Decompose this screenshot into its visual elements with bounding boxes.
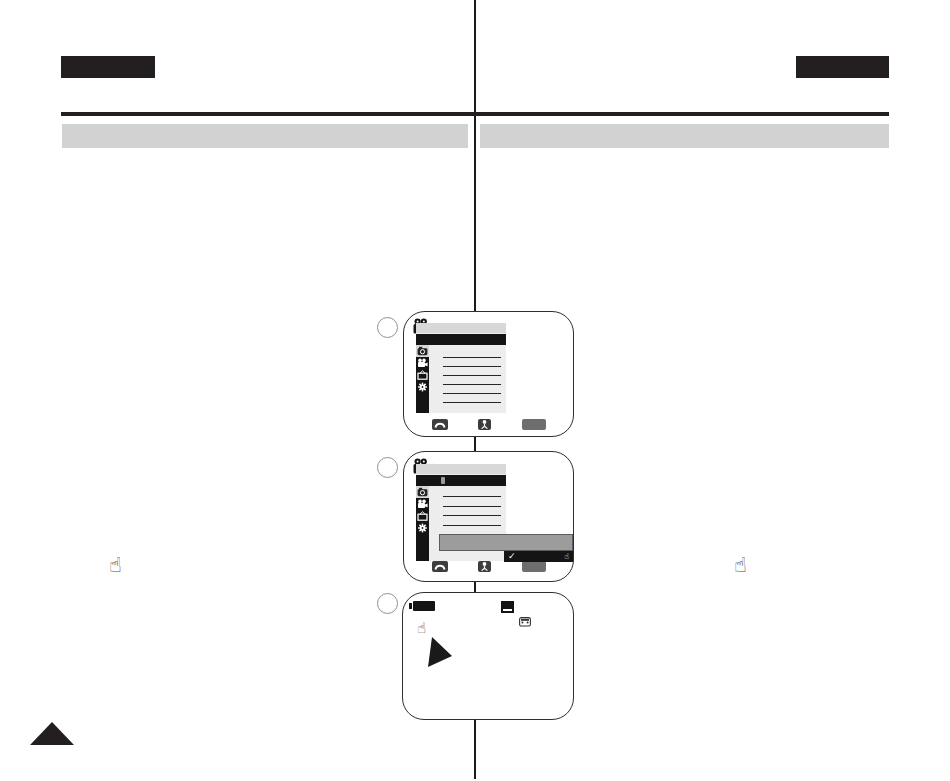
menu-item-line (443, 515, 501, 516)
press-hand-icon: ☝ (564, 553, 569, 561)
joystick-icon (478, 419, 491, 430)
menu-items-area (429, 345, 506, 413)
checkmark-icon: ✓ (508, 552, 516, 561)
step-circle-1 (377, 317, 398, 338)
menu-item-line (443, 402, 501, 403)
selection-highlight-bar (439, 534, 573, 551)
language-tab-right (796, 56, 889, 78)
selected-menu-row (416, 333, 506, 345)
menu-button (522, 419, 546, 430)
menu-item-line (443, 506, 501, 507)
gear-tab-icon (416, 381, 429, 393)
camera-menu (416, 323, 506, 414)
pointer-triangle (403, 593, 575, 721)
menu-button (522, 561, 546, 572)
tv-tab-icon (416, 510, 429, 522)
camera-tab-icon (416, 345, 429, 357)
language-tab-left (61, 56, 155, 78)
menu-header-bar (416, 464, 506, 474)
camera-tab-icon (416, 486, 429, 498)
lcd-screen-step3: ☝ (402, 592, 574, 720)
joystick-icon (478, 561, 491, 572)
menu-item-line (443, 384, 501, 385)
lcd-screen-step1 (403, 311, 574, 437)
manual-page: ☝ ☝ (0, 0, 950, 781)
camcorder-tab-icon (416, 498, 429, 510)
menu-item-line (443, 366, 501, 367)
camcorder-tab-icon (416, 357, 429, 369)
selected-menu-row (416, 474, 506, 486)
menu-body (416, 345, 506, 413)
margin-note-hand-icon: ☝ (734, 555, 747, 576)
lcd-screen-step2: ✓ ☝ (403, 451, 574, 582)
menu-item-line (443, 375, 501, 376)
confirm-bar: ✓ ☝ (504, 551, 573, 562)
menu-item-line (443, 525, 501, 526)
section-title-bar-left (62, 124, 468, 148)
menu-item-line (443, 496, 501, 497)
step-circle-3 (377, 593, 398, 614)
jog-dial-icon (432, 419, 448, 430)
gear-tab-icon (416, 522, 429, 534)
menu-sidebar (416, 486, 429, 561)
jog-dial-icon (432, 561, 448, 572)
section-title-bar-right (480, 124, 889, 148)
selected-row-icon (441, 477, 445, 484)
step-circle-2 (377, 457, 398, 478)
page-corner-triangle (30, 722, 74, 745)
menu-header-bar (416, 323, 506, 333)
menu-sidebar (416, 345, 429, 413)
header-rule (61, 112, 889, 116)
tv-tab-icon (416, 369, 429, 381)
menu-item-line (443, 357, 501, 358)
menu-item-line (443, 393, 501, 394)
margin-note-hand-icon: ☝ (109, 555, 122, 576)
